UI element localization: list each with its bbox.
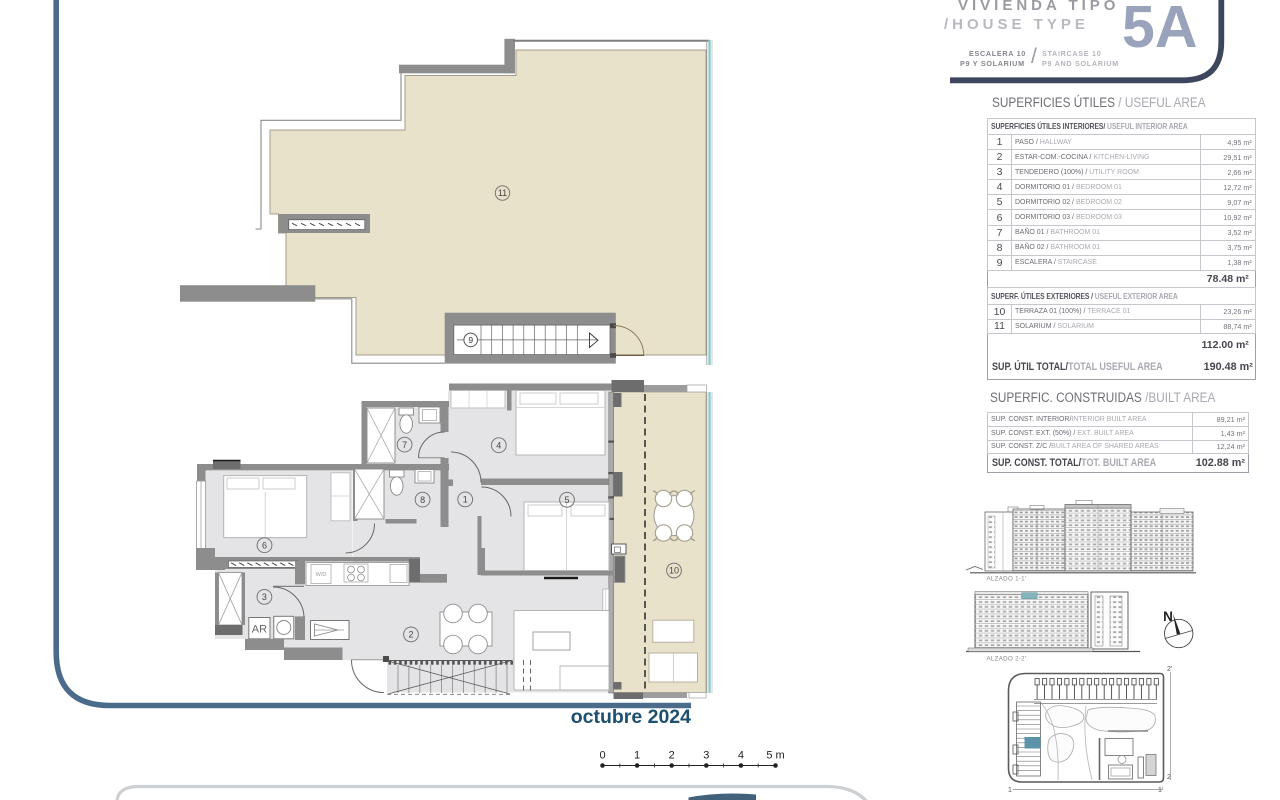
svg-text:ALZADO 1-1': ALZADO 1-1' [987, 576, 1027, 583]
svg-text:3: 3 [262, 592, 267, 602]
svg-text:3: 3 [703, 750, 709, 762]
svg-text:2: 2 [1167, 774, 1171, 781]
svg-text:2: 2 [408, 630, 413, 640]
svg-text:1: 1 [463, 495, 468, 505]
svg-text:AR: AR [252, 624, 267, 636]
svg-text:11: 11 [498, 188, 507, 198]
svg-text:1: 1 [1008, 787, 1012, 794]
svg-text:4: 4 [738, 750, 744, 762]
svg-text:7: 7 [402, 440, 407, 450]
svg-text:1: 1 [634, 750, 640, 762]
svg-text:10: 10 [669, 566, 679, 576]
svg-text:0: 0 [599, 750, 605, 762]
svg-text:5 m: 5 m [766, 750, 784, 762]
svg-text:8: 8 [420, 495, 425, 505]
svg-text:1': 1' [1158, 787, 1163, 794]
svg-text:ALZADO 2-2': ALZADO 2-2' [987, 656, 1027, 663]
svg-text:5: 5 [564, 495, 569, 505]
svg-text:W/D: W/D [316, 572, 327, 578]
svg-text:4: 4 [496, 440, 501, 450]
svg-text:2': 2' [1167, 666, 1172, 673]
svg-text:octubre 2024: octubre 2024 [571, 706, 691, 728]
svg-text:9: 9 [468, 335, 473, 345]
svg-text:2: 2 [669, 750, 675, 762]
svg-text:6: 6 [262, 540, 267, 550]
svg-text:N: N [1163, 609, 1173, 624]
